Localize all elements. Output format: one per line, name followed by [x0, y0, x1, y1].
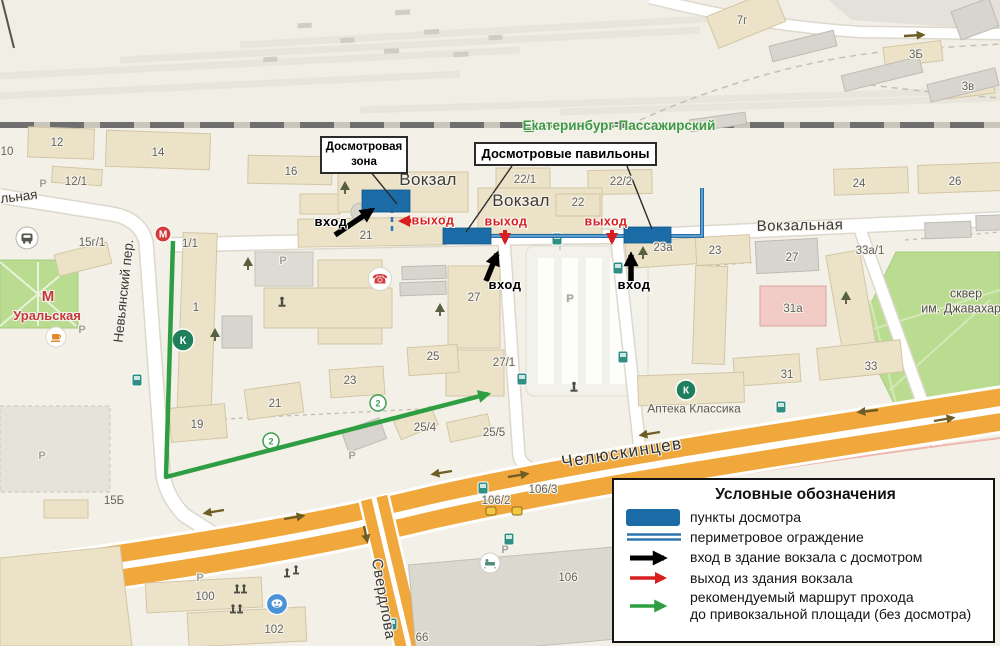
- map-label: 27: [468, 292, 481, 304]
- map-label: Р: [348, 451, 355, 463]
- map-label: 15Б: [104, 495, 124, 507]
- legend-checkpoint-swatch: [626, 509, 680, 526]
- exit-label: выход: [412, 214, 455, 227]
- legend-item-entry: вход в здание вокзала с досмотром: [626, 549, 985, 567]
- inspection-pavilions-callout: Досмотровые павильоны: [474, 142, 657, 166]
- map-label: 22/1: [514, 174, 536, 186]
- street-label: Челюскинцев: [560, 435, 684, 472]
- street-label: льная: [0, 188, 38, 207]
- map-label: 3в: [962, 81, 975, 93]
- map-label: 31: [781, 369, 794, 381]
- legend-item-label: рекомендуемый маршрут прохода до привокз…: [690, 589, 971, 622]
- map-label: им. Джавахарла: [921, 302, 1000, 315]
- map-label: Р: [279, 256, 286, 268]
- map-label: 25/4: [414, 422, 436, 434]
- map-label: 23: [709, 245, 722, 257]
- railway-station-label: Екатеринбург-Пассажирский: [523, 119, 716, 133]
- street-label: Свердлова: [368, 557, 398, 640]
- map-label: 19: [191, 419, 204, 431]
- entrance-label: вход: [315, 215, 348, 229]
- metro-station-label: М: [42, 289, 55, 305]
- map-label: 14: [152, 147, 165, 159]
- map-label: 27/1: [493, 357, 515, 369]
- map-label: 23а: [653, 242, 672, 254]
- map-label: 22: [572, 197, 585, 209]
- map-label: Р: [38, 451, 45, 463]
- map-label: Р: [566, 294, 573, 306]
- inspection-zone-callout: Досмотровая зона: [320, 136, 408, 174]
- legend-item-checkpoints: пункты досмотра: [626, 509, 985, 526]
- map-label: 106/2: [482, 495, 511, 507]
- map-label: сквер: [950, 287, 982, 300]
- map-label: 26: [949, 176, 962, 188]
- legend-title: Условные обозначения: [626, 486, 985, 504]
- map-label: 1/1: [182, 238, 198, 250]
- metro-station-label: Уральская: [13, 309, 81, 323]
- map-label: 23: [344, 375, 357, 387]
- map-label: Р: [78, 325, 85, 337]
- legend-exit-arrow-icon: [626, 570, 684, 586]
- map-label: 102: [264, 624, 283, 636]
- map-label: 27: [786, 252, 799, 264]
- legend-route-arrow-icon: [626, 598, 684, 614]
- map-label: Р: [501, 545, 508, 557]
- legend-fence-swatch: [626, 531, 682, 543]
- pharmacy-label: Аптека Классика: [647, 403, 741, 416]
- map-label: 33: [865, 361, 878, 373]
- legend: Условные обозначения пункты досмотра пер…: [612, 478, 995, 643]
- entrance-label: вход: [618, 278, 651, 292]
- exit-label: выход: [485, 215, 528, 228]
- legend-item-label: вход в здание вокзала с досмотром: [690, 549, 922, 566]
- map-label: 24: [853, 178, 866, 190]
- legend-item-label: пункты досмотра: [690, 509, 801, 526]
- map-label: Р: [39, 179, 46, 191]
- street-label: Невьянский пер.: [112, 239, 137, 344]
- map-label: Р: [196, 573, 203, 585]
- legend-item-fence: периметровое ограждение: [626, 529, 985, 546]
- map-label: 22/2: [610, 176, 632, 188]
- map-label: 16: [285, 166, 298, 178]
- map-label: 106/3: [529, 484, 558, 496]
- map-label: 21: [269, 398, 282, 410]
- map-label: 1: [193, 302, 199, 314]
- legend-entry-arrow-icon: [626, 549, 684, 567]
- map-label: 106: [558, 572, 577, 584]
- legend-item-label: выход из здания вокзала: [690, 570, 853, 587]
- map-label: 33а/1: [856, 245, 885, 257]
- legend-item-exit: выход из здания вокзала: [626, 570, 985, 587]
- map-label: 7г: [737, 15, 748, 27]
- map-label: 3Б: [909, 49, 923, 61]
- map-label: 12: [51, 137, 64, 149]
- map-label: 21: [360, 230, 373, 242]
- map-label: 12/1: [65, 176, 87, 188]
- street-label: Вокзальная: [757, 217, 844, 234]
- station-security-map: М ☎ К К: [0, 0, 1000, 646]
- map-label: 15г/1: [79, 237, 106, 249]
- entrance-label: вход: [489, 278, 522, 292]
- map-label: 66: [416, 632, 429, 644]
- map-label: 25/5: [483, 427, 505, 439]
- legend-item-label: периметровое ограждение: [690, 529, 864, 546]
- map-label: 10: [1, 146, 14, 158]
- exit-label: выход: [585, 215, 628, 228]
- map-label: 25: [427, 351, 440, 363]
- station-label: Вокзал: [492, 192, 549, 210]
- map-label: 100: [195, 591, 214, 603]
- map-label: 31а: [783, 303, 802, 315]
- legend-item-route: рекомендуемый маршрут прохода до привокз…: [626, 589, 985, 622]
